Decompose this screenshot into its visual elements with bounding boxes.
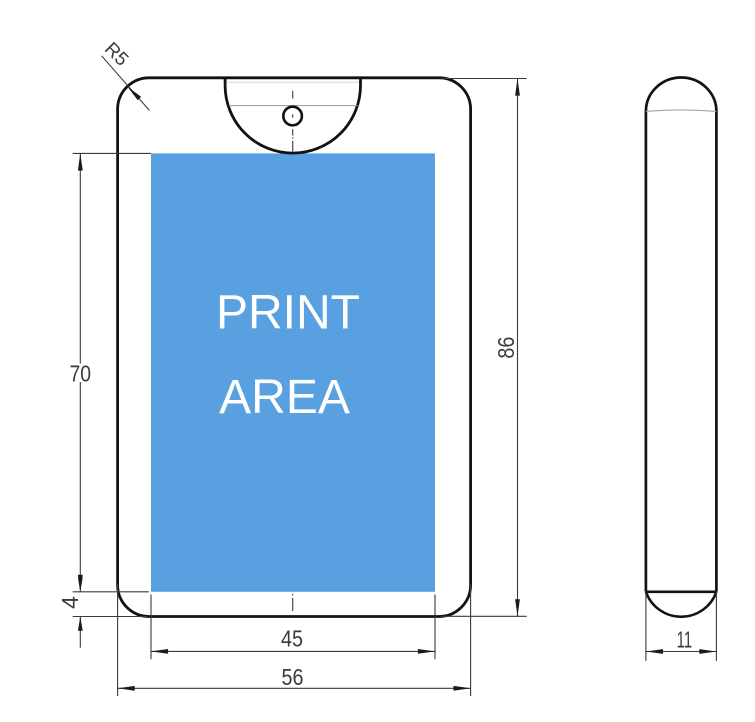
- svg-text:4: 4: [57, 596, 83, 609]
- svg-text:86: 86: [493, 337, 519, 359]
- svg-text:11: 11: [677, 627, 693, 653]
- svg-text:45: 45: [281, 625, 303, 651]
- svg-text:AREA: AREA: [219, 371, 350, 424]
- svg-text:70: 70: [70, 360, 92, 386]
- svg-text:PRINT: PRINT: [216, 287, 360, 340]
- svg-text:56: 56: [282, 664, 304, 690]
